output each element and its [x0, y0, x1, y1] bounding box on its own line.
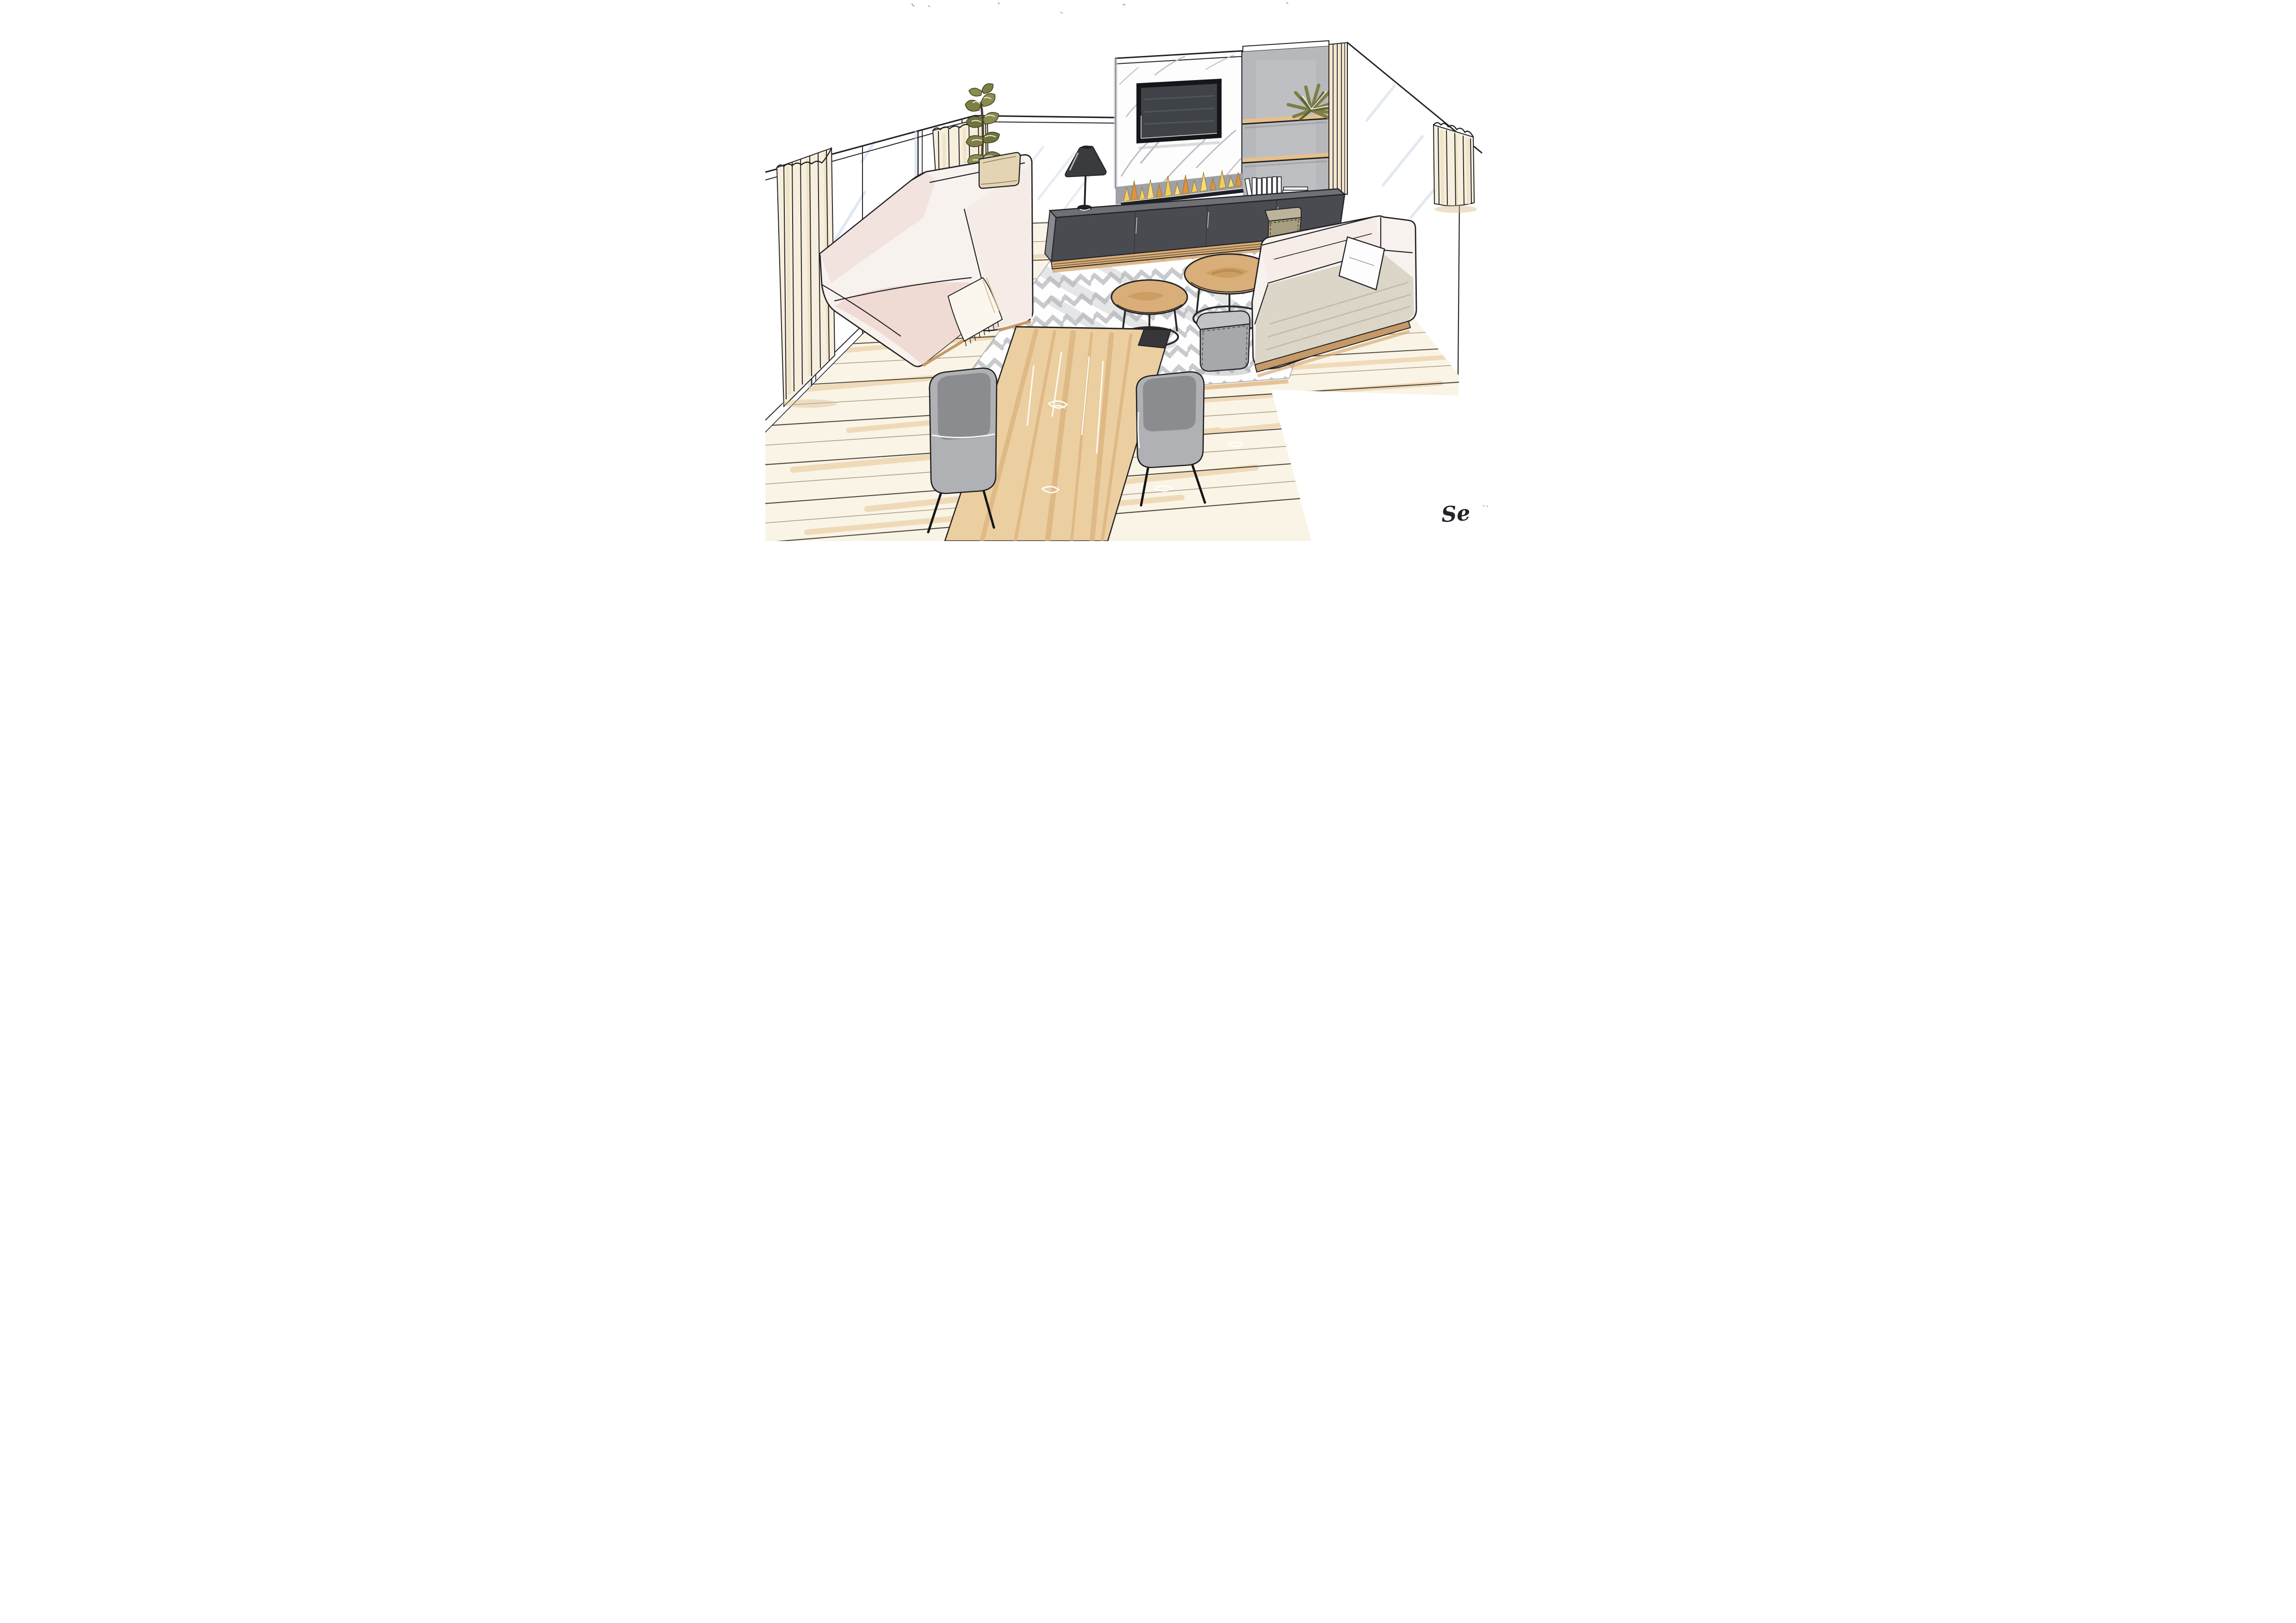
marble-media-panel [1116, 51, 1242, 188]
wall-mounted-tv [1136, 79, 1222, 148]
shelf-unit-side-trim [1329, 43, 1347, 194]
sketch-canvas: Se [765, 0, 1531, 541]
beige-cushion [979, 153, 1020, 188]
sheer-curtain-right [1433, 123, 1477, 213]
interior-design-sketch: Se [765, 0, 1531, 541]
gray-cube-pouf [1196, 311, 1251, 376]
gray-shelf-wall [1243, 41, 1347, 202]
artist-signature: Se [1440, 500, 1471, 527]
